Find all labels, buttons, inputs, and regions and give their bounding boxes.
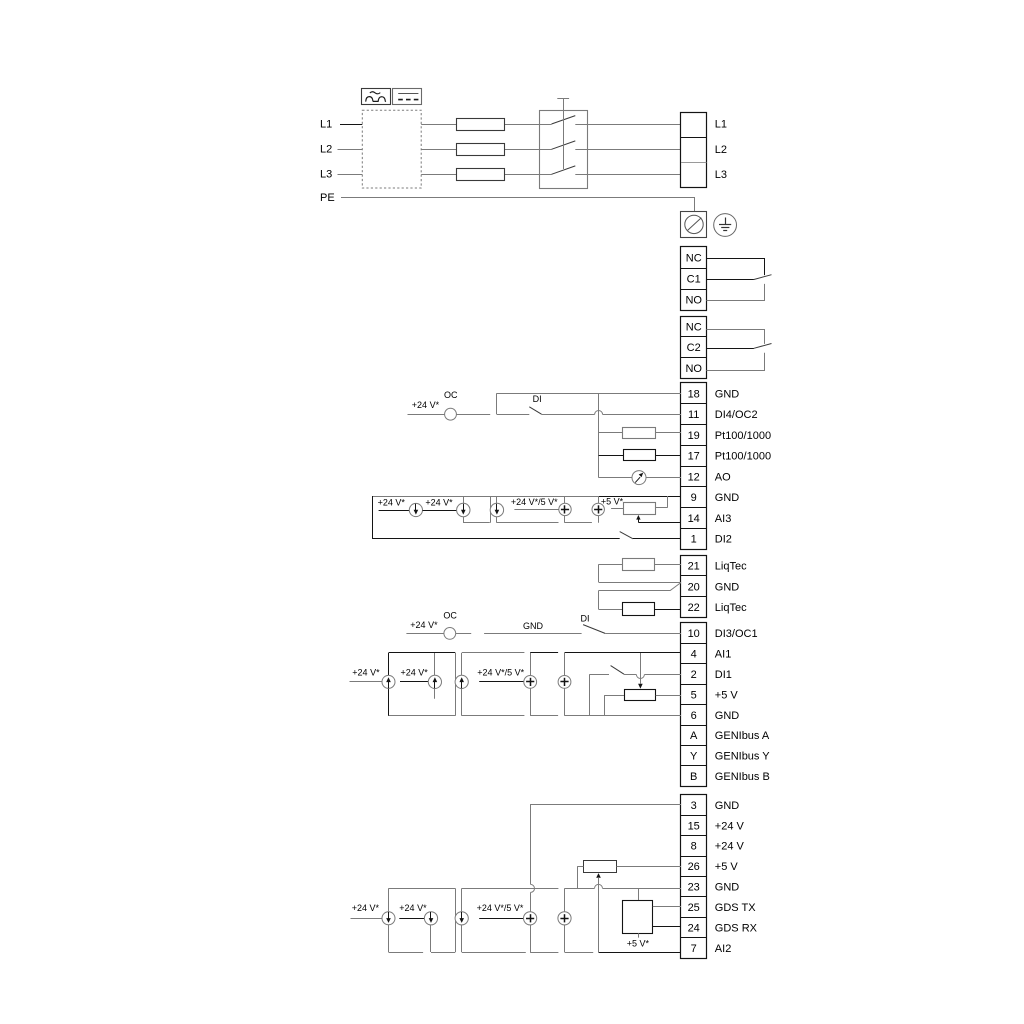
svg-text:22: 22 xyxy=(688,602,700,614)
svg-text:PE: PE xyxy=(320,192,335,204)
svg-text:AI1: AI1 xyxy=(715,648,732,660)
svg-text:GND: GND xyxy=(715,581,740,593)
svg-text:+5 V: +5 V xyxy=(715,861,739,873)
svg-text:NO: NO xyxy=(685,363,702,375)
svg-text:24: 24 xyxy=(688,922,700,934)
svg-text:+24 V*: +24 V* xyxy=(412,400,440,410)
svg-text:+24 V*: +24 V* xyxy=(352,668,380,678)
svg-text:GDS RX: GDS RX xyxy=(715,922,758,934)
svg-text:2: 2 xyxy=(691,669,697,681)
svg-text:+24 V*: +24 V* xyxy=(410,620,438,630)
svg-text:L2: L2 xyxy=(715,144,727,156)
svg-text:23: 23 xyxy=(688,882,700,894)
svg-text:+24 V*: +24 V* xyxy=(352,903,380,913)
svg-text:11: 11 xyxy=(688,409,699,421)
svg-text:L3: L3 xyxy=(715,169,727,181)
svg-text:LiqTec: LiqTec xyxy=(715,560,747,572)
svg-text:GDS TX: GDS TX xyxy=(715,902,756,914)
svg-text:+24 V*/5 V*: +24 V*/5 V* xyxy=(477,668,524,678)
svg-text:7: 7 xyxy=(691,943,697,955)
svg-text:Y: Y xyxy=(690,751,698,763)
svg-text:+24 V*: +24 V* xyxy=(401,668,429,678)
svg-text:GENIbus B: GENIbus B xyxy=(715,771,770,783)
svg-text:+24 V*/5 V*: +24 V*/5 V* xyxy=(511,497,558,507)
svg-text:OC: OC xyxy=(444,390,458,400)
svg-text:C1: C1 xyxy=(687,273,701,285)
svg-text:19: 19 xyxy=(688,430,700,442)
svg-text:LiqTec: LiqTec xyxy=(715,602,747,614)
svg-text:GND: GND xyxy=(715,800,740,812)
svg-text:NO: NO xyxy=(685,294,702,306)
svg-text:DI: DI xyxy=(581,614,590,624)
svg-text:18: 18 xyxy=(688,388,700,400)
svg-text:C2: C2 xyxy=(687,342,701,354)
svg-text:21: 21 xyxy=(688,560,700,572)
svg-text:6: 6 xyxy=(691,710,697,722)
svg-text:GND: GND xyxy=(715,882,740,894)
svg-text:+5 V*: +5 V* xyxy=(601,496,624,506)
svg-text:AO: AO xyxy=(715,471,731,483)
svg-text:10: 10 xyxy=(688,628,700,640)
svg-text:GND: GND xyxy=(715,388,740,400)
svg-text:Pt100/1000: Pt100/1000 xyxy=(715,451,771,463)
svg-text:14: 14 xyxy=(688,513,700,525)
svg-text:+24 V: +24 V xyxy=(715,841,745,853)
svg-text:AI3: AI3 xyxy=(715,513,732,525)
svg-text:GENIbus Y: GENIbus Y xyxy=(715,751,770,763)
svg-text:DI: DI xyxy=(533,394,542,404)
svg-text:L1: L1 xyxy=(320,118,332,130)
svg-text:B: B xyxy=(690,771,697,783)
svg-text:8: 8 xyxy=(691,841,697,853)
svg-text:15: 15 xyxy=(688,820,700,832)
svg-text:12: 12 xyxy=(688,471,700,483)
svg-text:GENIbus A: GENIbus A xyxy=(715,730,770,742)
svg-text:NC: NC xyxy=(686,252,702,264)
svg-text:26: 26 xyxy=(688,861,700,873)
svg-text:+24 V: +24 V xyxy=(715,820,745,832)
svg-text:+24 V*: +24 V* xyxy=(425,497,453,507)
svg-text:5: 5 xyxy=(691,689,697,701)
svg-text:L3: L3 xyxy=(320,169,332,181)
svg-text:OC: OC xyxy=(443,610,457,620)
svg-text:DI1: DI1 xyxy=(715,669,732,681)
svg-text:DI4/OC2: DI4/OC2 xyxy=(715,409,758,421)
svg-text:4: 4 xyxy=(691,648,697,660)
svg-text:+24 V*: +24 V* xyxy=(378,497,406,507)
svg-text:A: A xyxy=(690,730,698,742)
svg-text:DI3/OC1: DI3/OC1 xyxy=(715,628,758,640)
svg-text:GND: GND xyxy=(715,710,740,722)
svg-text:Pt100/1000: Pt100/1000 xyxy=(715,430,771,442)
svg-text:20: 20 xyxy=(688,581,700,593)
svg-text:3: 3 xyxy=(691,800,697,812)
svg-text:+5 V: +5 V xyxy=(715,689,739,701)
svg-text:AI2: AI2 xyxy=(715,943,732,955)
svg-text:GND: GND xyxy=(715,492,740,504)
svg-text:DI2: DI2 xyxy=(715,534,732,546)
svg-text:GND: GND xyxy=(523,621,544,631)
svg-text:L2: L2 xyxy=(320,144,332,156)
svg-text:+24 V*/5 V*: +24 V*/5 V* xyxy=(477,903,524,913)
svg-text:17: 17 xyxy=(688,451,700,463)
svg-text:25: 25 xyxy=(688,902,700,914)
svg-text:L1: L1 xyxy=(715,119,727,131)
svg-text:+24 V*: +24 V* xyxy=(399,903,427,913)
svg-text:1: 1 xyxy=(691,534,697,546)
svg-text:NC: NC xyxy=(686,321,702,333)
svg-text:+5 V*: +5 V* xyxy=(627,938,650,948)
svg-text:9: 9 xyxy=(691,492,697,504)
